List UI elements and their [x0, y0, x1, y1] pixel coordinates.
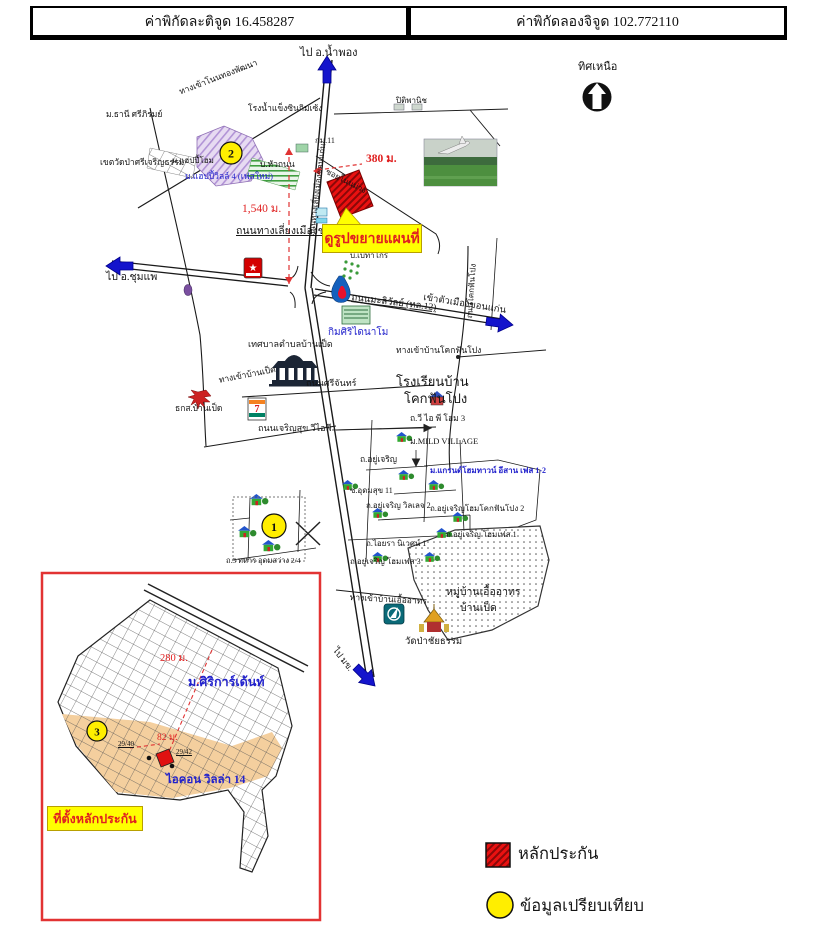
- hua-thanon-label: บ.หัวถนน: [260, 160, 295, 169]
- caltex-icon: ★: [244, 258, 262, 278]
- vip-home3-label: ถ.วี ไอ พี โฮม 3: [410, 414, 465, 423]
- yucharoen-phase1-label: ถ.อยู่เจริญ โฮมเฟส 1: [446, 531, 517, 539]
- distance-1540-label: 1,540 ม.: [242, 203, 281, 215]
- grand-home-label: ม.แกรนด์โฮมทาวน์ อีสาน เฟส 1-2: [430, 467, 546, 475]
- inset-distance-280-label: 280 ม.: [160, 653, 188, 664]
- airport-photo: [424, 136, 497, 186]
- legend: [486, 843, 513, 918]
- marker-1: 1: [271, 520, 277, 534]
- house-2942-label: 29/42: [176, 749, 192, 756]
- railroad-crossing-icon: [296, 522, 320, 545]
- thani-village-label: ม.ธานี ศรีภิรมย์: [106, 110, 162, 119]
- seven-eleven-icon: 7: [248, 398, 266, 420]
- kimsiri-label: กิมศิริไดนาโม: [328, 328, 388, 339]
- siri-garden-label: ม.ศิริการ์เด้นท์: [188, 676, 265, 689]
- tree-cluster-icon: [342, 260, 359, 279]
- compass-icon: [583, 83, 612, 112]
- school-label-line1: โรงเรียนบ้าน: [396, 375, 469, 389]
- map-document: ค่าพิกัดละติจูด 16.458287 ค่าพิกัดลองจิจ…: [0, 0, 815, 938]
- legend-comparison-label: ข้อมูลเปรียบเทียบ: [520, 897, 644, 914]
- wat-pa-label: วัดป่าชัยธรรม: [405, 638, 462, 648]
- yucharoen-kokfanpong2-label: ถ.อยู่เจริญโฮมโคกฟันโปง 2: [430, 505, 524, 513]
- caltex-star-glyph: ★: [249, 263, 258, 274]
- thahan-road-label: ถ.3 ทหาร อุดมสว่าง 2/4: [226, 557, 300, 565]
- compass-label: ทิศเหนือ: [578, 62, 617, 74]
- srichan-road-label: ถนนศรีจันทร์: [306, 379, 357, 388]
- leader-lines: [332, 355, 460, 466]
- ptt-station-icon: [332, 276, 351, 303]
- school-label-line2: โคกฟันโปง: [404, 392, 467, 406]
- map-canvas: ★ 7: [0, 0, 815, 938]
- happy-ville-label: ม.แฮปปี้วิลล์ 4 (เฟสใหม่): [185, 172, 273, 181]
- charoensuk-road-label: ถนนเจริญสุข วีไอพี: [258, 424, 331, 433]
- marker-2: 2: [228, 147, 234, 161]
- collateral-swatch: [486, 843, 510, 867]
- betagro-label: บ.เบทาโกร: [350, 252, 388, 260]
- site-location-callout: ที่ตั้งหลักประกัน: [47, 806, 143, 831]
- euaarthorn-label-line1: หมู่บ้านเอื้ออาทร: [446, 587, 521, 598]
- legend-collateral-label: หลักประกัน: [518, 845, 598, 862]
- latitude-value: ค่าพิกัดละติจูด 16.458287: [33, 8, 406, 35]
- distance-380-label: 380 ม.: [366, 153, 397, 165]
- seven-glyph: 7: [255, 404, 260, 415]
- direction-north-label: ไป อ.น้ำพอง: [300, 48, 358, 60]
- warehouse-icon: [342, 306, 370, 324]
- comparison-swatch: [487, 892, 513, 918]
- inset-house-dot-right: [170, 764, 175, 769]
- expand-map-callout: ดูรูปขยายแผนที่: [322, 224, 422, 253]
- petrol-label: ปิติพานิช: [396, 97, 427, 105]
- icon-villa-label: ไอคอน วิลล่า 14: [166, 774, 245, 786]
- inset-map: [42, 573, 320, 920]
- lotus-store-icon: [384, 604, 404, 624]
- inset-distance-82-label: 82 ม.: [157, 734, 178, 744]
- fuel-drop-icon: [184, 285, 192, 296]
- mild-village-label: ม.MILD VILLAGE: [410, 437, 478, 446]
- direction-west-label: ไป อ.ชุมแพ: [106, 272, 157, 283]
- house-2940-label: 29/40: [118, 741, 134, 748]
- aiyara-label: ถ.ไอยรา นิเวศน์ 1: [366, 540, 426, 548]
- municipality-label: เทศบาลตำบลบ้านเป็ด: [248, 340, 333, 349]
- happy-home-label: ม.แฮปปี้โฮม: [172, 157, 214, 165]
- inset-house-dot-left: [147, 756, 152, 761]
- coordinate-header: ค่าพิกัดละติจูด 16.458287 ค่าพิกัดลองจิจ…: [30, 6, 787, 40]
- yucharoen-phase3-label: ถ.อยู่เจริญ โฮมเฟส 3: [350, 558, 421, 566]
- marker-3: 3: [94, 727, 100, 739]
- yucharoen-road-label: ถ.อยู่เจริญ: [360, 455, 397, 464]
- longitude-value: ค่าพิกัดลองจิจูด 102.772110: [411, 8, 784, 35]
- euaarthorn-label-line2: บ้านเป็ด: [460, 603, 497, 614]
- north-arrow-icon: [318, 56, 336, 83]
- udomsuk-label: ซ.อุดมสุข 11: [350, 487, 393, 495]
- tks-label: ธกส.บ้านเป็ด: [175, 404, 222, 413]
- entrance-kokfanpong-label: ทางเข้าบ้านโคกฟันโปง: [396, 346, 481, 355]
- ice-factory-label: โรงน้ำแข็งซินกิมเซ้ง: [248, 104, 322, 113]
- yucharoen-village2-label: ถ.อยู่เจริญ วิลเลจ 2: [366, 502, 431, 510]
